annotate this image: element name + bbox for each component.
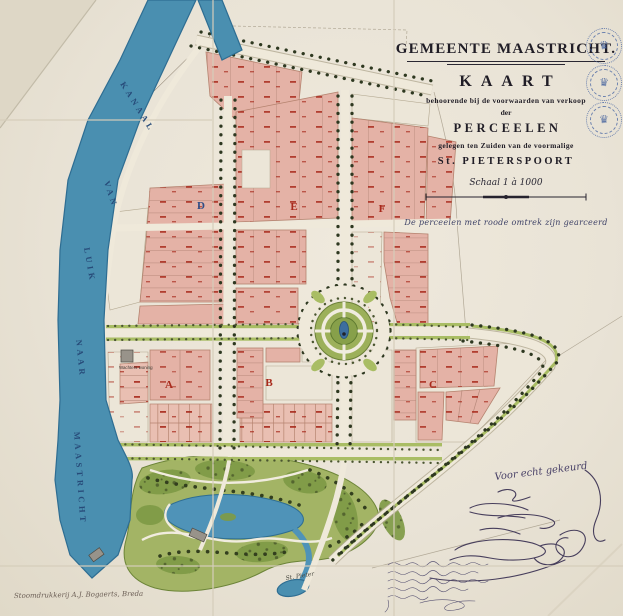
block-label-b: B <box>265 377 273 389</box>
map-scan: KANAAL VAN LUIK NAAR MAASTRICHT A B C D … <box>0 0 623 616</box>
gate-name: St. PIETERSPOORT <box>390 156 622 167</box>
title-rule-2 <box>447 64 565 65</box>
roundabout-monument <box>340 322 349 339</box>
scale-label: Schaal 1 à 1000 <box>390 178 622 188</box>
parcel-color-note: De perceelen met roode omtrek zijn gearc… <box>390 218 622 227</box>
printer-imprint: Stoomdrukkerij A.J. Bogaerts, Breda <box>14 590 143 600</box>
block-label-f: F <box>379 203 386 215</box>
canal-harbor-arm <box>198 0 242 60</box>
paper-fold-corner <box>0 0 96 128</box>
signature-flourishes <box>430 470 605 581</box>
handwritten-note-lines <box>385 562 488 613</box>
block-label-c: C <box>429 379 437 391</box>
roundabout <box>298 285 390 377</box>
stamp-ring <box>589 105 618 134</box>
guard-house-label: Wachters woning <box>119 365 153 370</box>
map-title-block: GEMEENTE MAASTRICHT. KAART behoorende bi… <box>390 42 622 227</box>
title-rule <box>407 61 605 62</box>
guard-house <box>121 350 133 362</box>
block-label-d: D <box>197 200 205 212</box>
stamp-ring <box>589 68 619 98</box>
stamp-ring <box>589 31 620 62</box>
certified-note: Voor echt gekeurd <box>494 461 588 483</box>
title-line-1: behoorende bij de voorwaarden van verkoo… <box>390 96 622 105</box>
title-line-3: gelegen ten Zuiden van de voormalige <box>390 141 622 150</box>
block-label-e: E <box>290 201 297 213</box>
block-label-a: A <box>165 379 173 391</box>
scale-bar <box>390 190 622 208</box>
